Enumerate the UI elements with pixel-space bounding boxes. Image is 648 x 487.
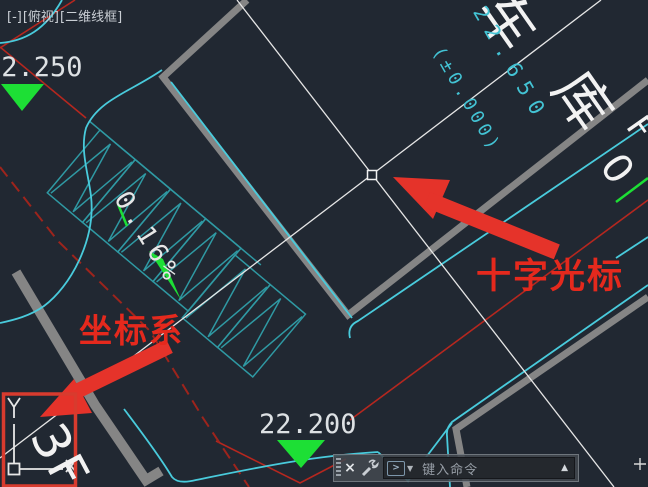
pickbox bbox=[368, 171, 377, 180]
viewport-menu-control[interactable]: [-] bbox=[7, 10, 22, 25]
autocad-viewport: [-][俯视][二维线框] 22.250 22.200 22.650 (±0.0… bbox=[0, 0, 648, 487]
ucs-origin-square bbox=[9, 464, 20, 475]
command-bar-close-button[interactable]: × bbox=[341, 455, 359, 481]
recent-commands-button[interactable]: ▲ bbox=[561, 463, 568, 473]
viewport-controls: [-][俯视][二维线框] bbox=[7, 6, 123, 25]
customize-wrench-icon[interactable] bbox=[359, 457, 381, 479]
viewport-style-control[interactable]: [二维线框] bbox=[60, 10, 122, 25]
parking-stalls-lower bbox=[182, 255, 305, 377]
ucs-annotation-label: 坐标系 bbox=[79, 304, 184, 352]
crosshair-annotation-label: 十字光标 bbox=[476, 248, 624, 299]
elevation-label-22250: 22.250 bbox=[0, 52, 83, 83]
ucs-y-letter bbox=[8, 398, 20, 418]
command-prompt-icon[interactable]: > bbox=[387, 461, 405, 476]
command-input-field[interactable]: > ▼ 键入命令 ▲ bbox=[383, 457, 575, 479]
green-segments bbox=[118, 178, 648, 226]
edge-tick-mark bbox=[634, 458, 646, 470]
viewport-view-control[interactable]: [俯视] bbox=[23, 10, 59, 25]
command-dropdown-icon[interactable]: ▼ bbox=[407, 464, 413, 473]
elevation-label-22200: 22.200 bbox=[259, 409, 357, 440]
command-line-bar[interactable]: × > ▼ 键入命令 ▲ bbox=[333, 454, 579, 482]
command-placeholder: 键入命令 bbox=[422, 459, 561, 478]
